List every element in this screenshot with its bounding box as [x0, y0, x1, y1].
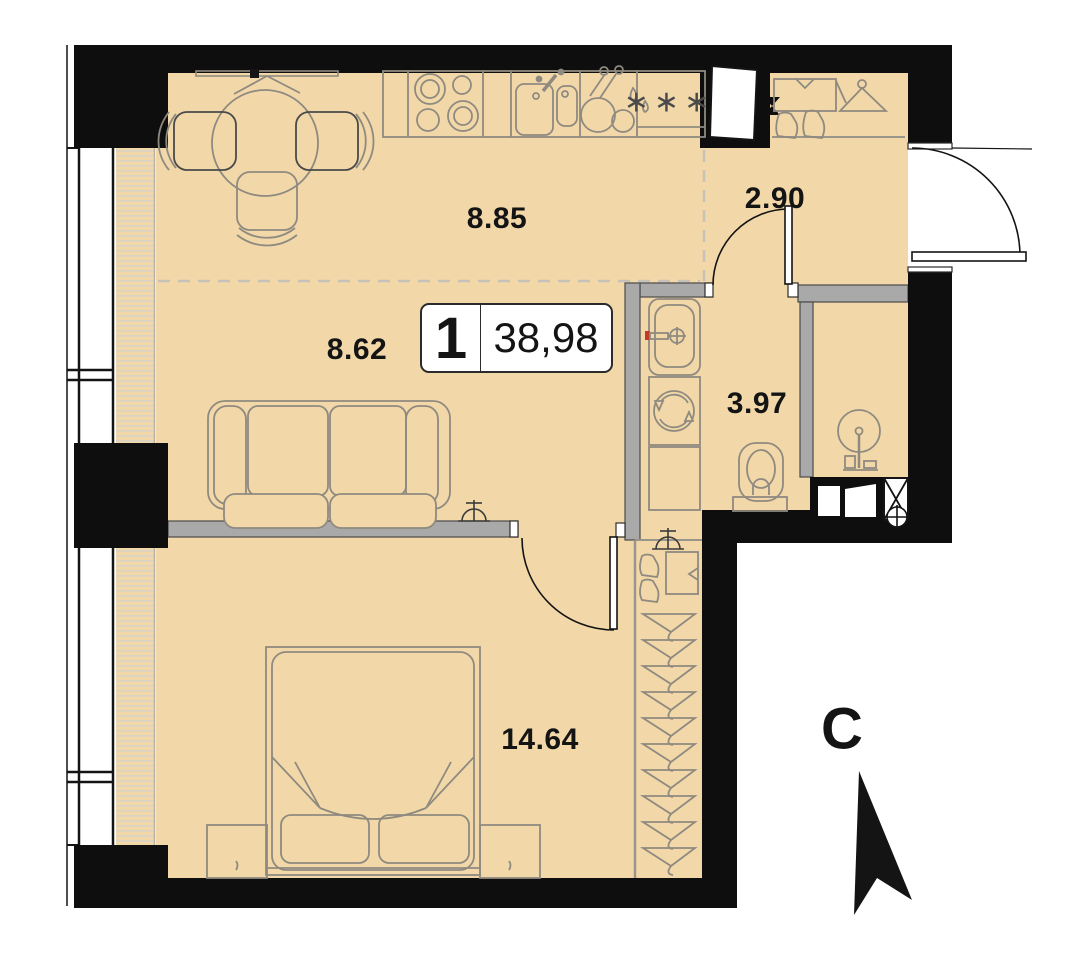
compass-north-label: С — [821, 696, 863, 763]
top-left-pier — [74, 45, 168, 148]
north-arrow-icon — [854, 771, 912, 915]
unit-info-badge: 1 38,98 — [420, 303, 613, 373]
unit-rooms-count: 1 — [422, 305, 481, 371]
shower-left-wall — [800, 302, 813, 477]
room-area-bedroom: 14.64 — [501, 723, 579, 757]
unit-total-area: 38,98 — [481, 305, 611, 371]
room-area-hallway: 2.90 — [745, 182, 805, 216]
bottom-wall — [163, 878, 737, 908]
bedroom-door-leaf — [610, 537, 617, 629]
bathroom-bottom-wall — [703, 510, 810, 543]
entrance-door-swing — [912, 148, 1020, 256]
facade-window-sash — [845, 484, 876, 517]
room-area-living: 8.62 — [327, 333, 387, 367]
bottom-left-pier — [74, 845, 168, 908]
left-mid-pier — [74, 443, 168, 548]
top-right-corner — [908, 45, 952, 148]
window-sill-hatch-upper — [116, 148, 154, 443]
bathroom-door-leaf — [785, 206, 792, 284]
facade-window-inset — [818, 486, 840, 516]
bathroom-left-wall — [625, 283, 640, 540]
entrance-threshold-line — [952, 148, 1032, 149]
floor-plan-drawing — [0, 0, 1090, 960]
right-wall — [908, 268, 952, 543]
shower-top-wall — [798, 285, 908, 302]
fridge-icon: ∗∗∗ — [624, 85, 714, 120]
bathroom-top-wall — [640, 283, 712, 297]
entrance-door-leaf — [912, 252, 1026, 261]
bedroom-right-wall — [702, 510, 737, 878]
floor-plan: 8.85 2.90 8.62 3.97 14.64 1 38,98 ∗∗∗ С — [0, 0, 1090, 960]
room-area-bathroom: 3.97 — [727, 387, 787, 421]
window-sill-hatch-lower — [116, 548, 154, 845]
vent-shaft — [710, 66, 757, 140]
room-area-kitchen: 8.85 — [467, 202, 527, 236]
top-wall — [163, 45, 952, 73]
